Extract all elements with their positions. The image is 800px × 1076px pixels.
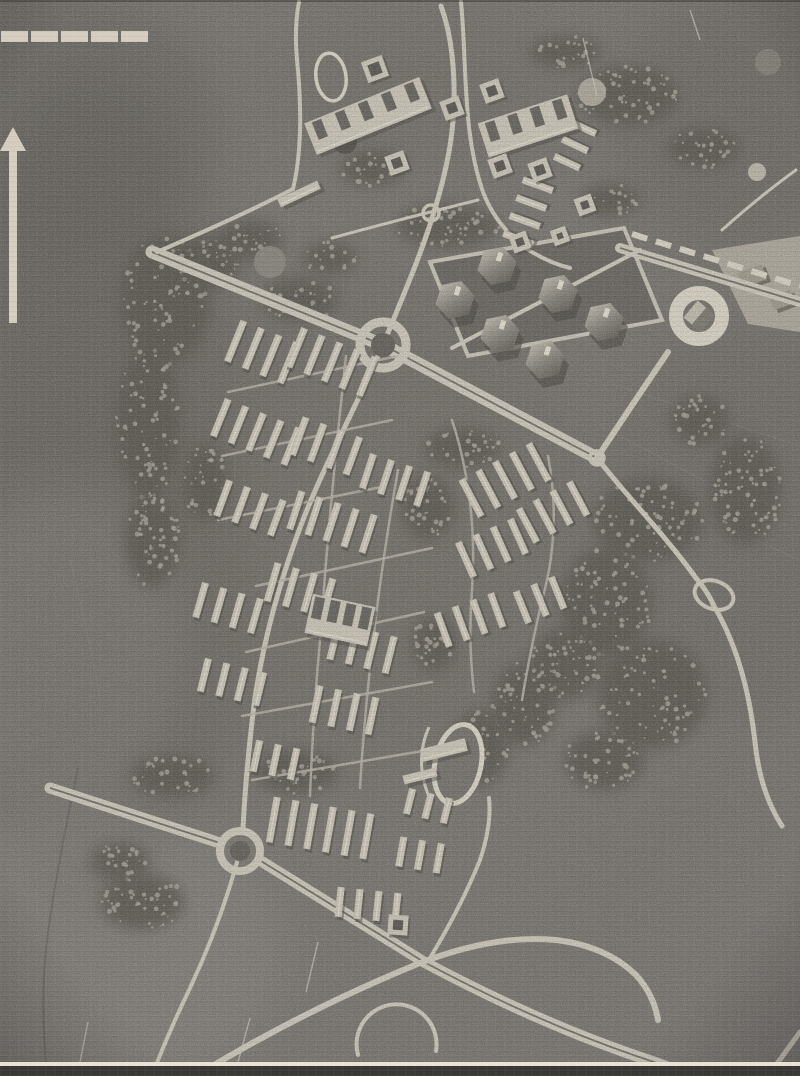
aerial-photo-plate: [0, 0, 800, 1076]
photo-effects-layer: [0, 0, 800, 1076]
town-plan-aerial-photo: [0, 0, 800, 1076]
vignette: [0, 0, 800, 1076]
scale-bar-segment: [31, 31, 58, 42]
scale-bar-segment: [91, 31, 118, 42]
plate-edge-dark-strip: [0, 1066, 800, 1076]
scale-bar-segment: [1, 31, 28, 42]
plate-edge-highlight: [0, 1062, 800, 1066]
scale-bar-segment: [61, 31, 88, 42]
plate-top-edge: [0, 0, 800, 2]
scale-bar: [1, 31, 148, 42]
north-arrow-shaft: [9, 148, 17, 323]
scale-bar-segment: [121, 31, 148, 42]
